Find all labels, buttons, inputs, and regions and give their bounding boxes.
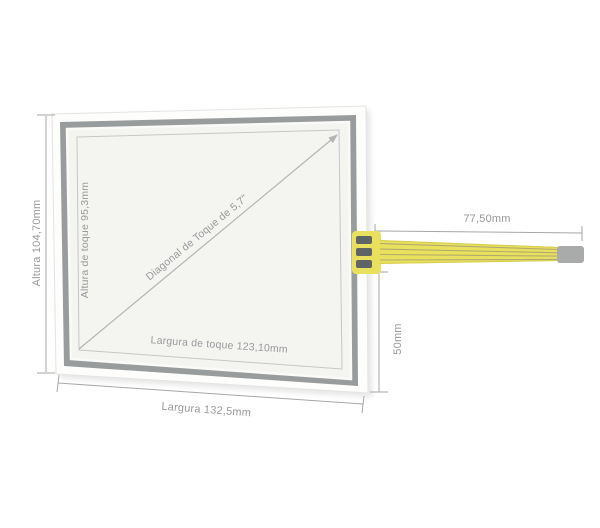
cable-length-label: 77,50mm bbox=[463, 213, 510, 225]
height-touch-label: Altura de toque 95,3mm bbox=[79, 182, 91, 299]
cable-contact-pad bbox=[356, 260, 372, 268]
dimension-height-total: Altura 104,70mm bbox=[31, 115, 55, 373]
height-total-label: Altura 104,70mm bbox=[31, 200, 43, 287]
cable-connector bbox=[557, 246, 584, 263]
dimension-line bbox=[375, 231, 582, 233]
cable-contact-pad bbox=[356, 248, 372, 256]
width-total-label: Largura 132,5mm bbox=[161, 401, 251, 420]
ribbon-wire bbox=[380, 259, 558, 260]
dimension-cable-offset: 50mm bbox=[370, 272, 404, 392]
flex-cable bbox=[352, 231, 584, 274]
dimension-cable-length: 77,50mm bbox=[375, 213, 582, 241]
cable-offset-label: 50mm bbox=[392, 323, 404, 354]
touchscreen-dimension-drawing: Altura 104,70mm Altura de toque 95,3mm D… bbox=[0, 0, 600, 528]
dimension-tick bbox=[362, 396, 364, 413]
cable-contact-pad bbox=[356, 236, 372, 244]
product-diagram: Altura 104,70mm Altura de toque 95,3mm D… bbox=[0, 0, 600, 528]
